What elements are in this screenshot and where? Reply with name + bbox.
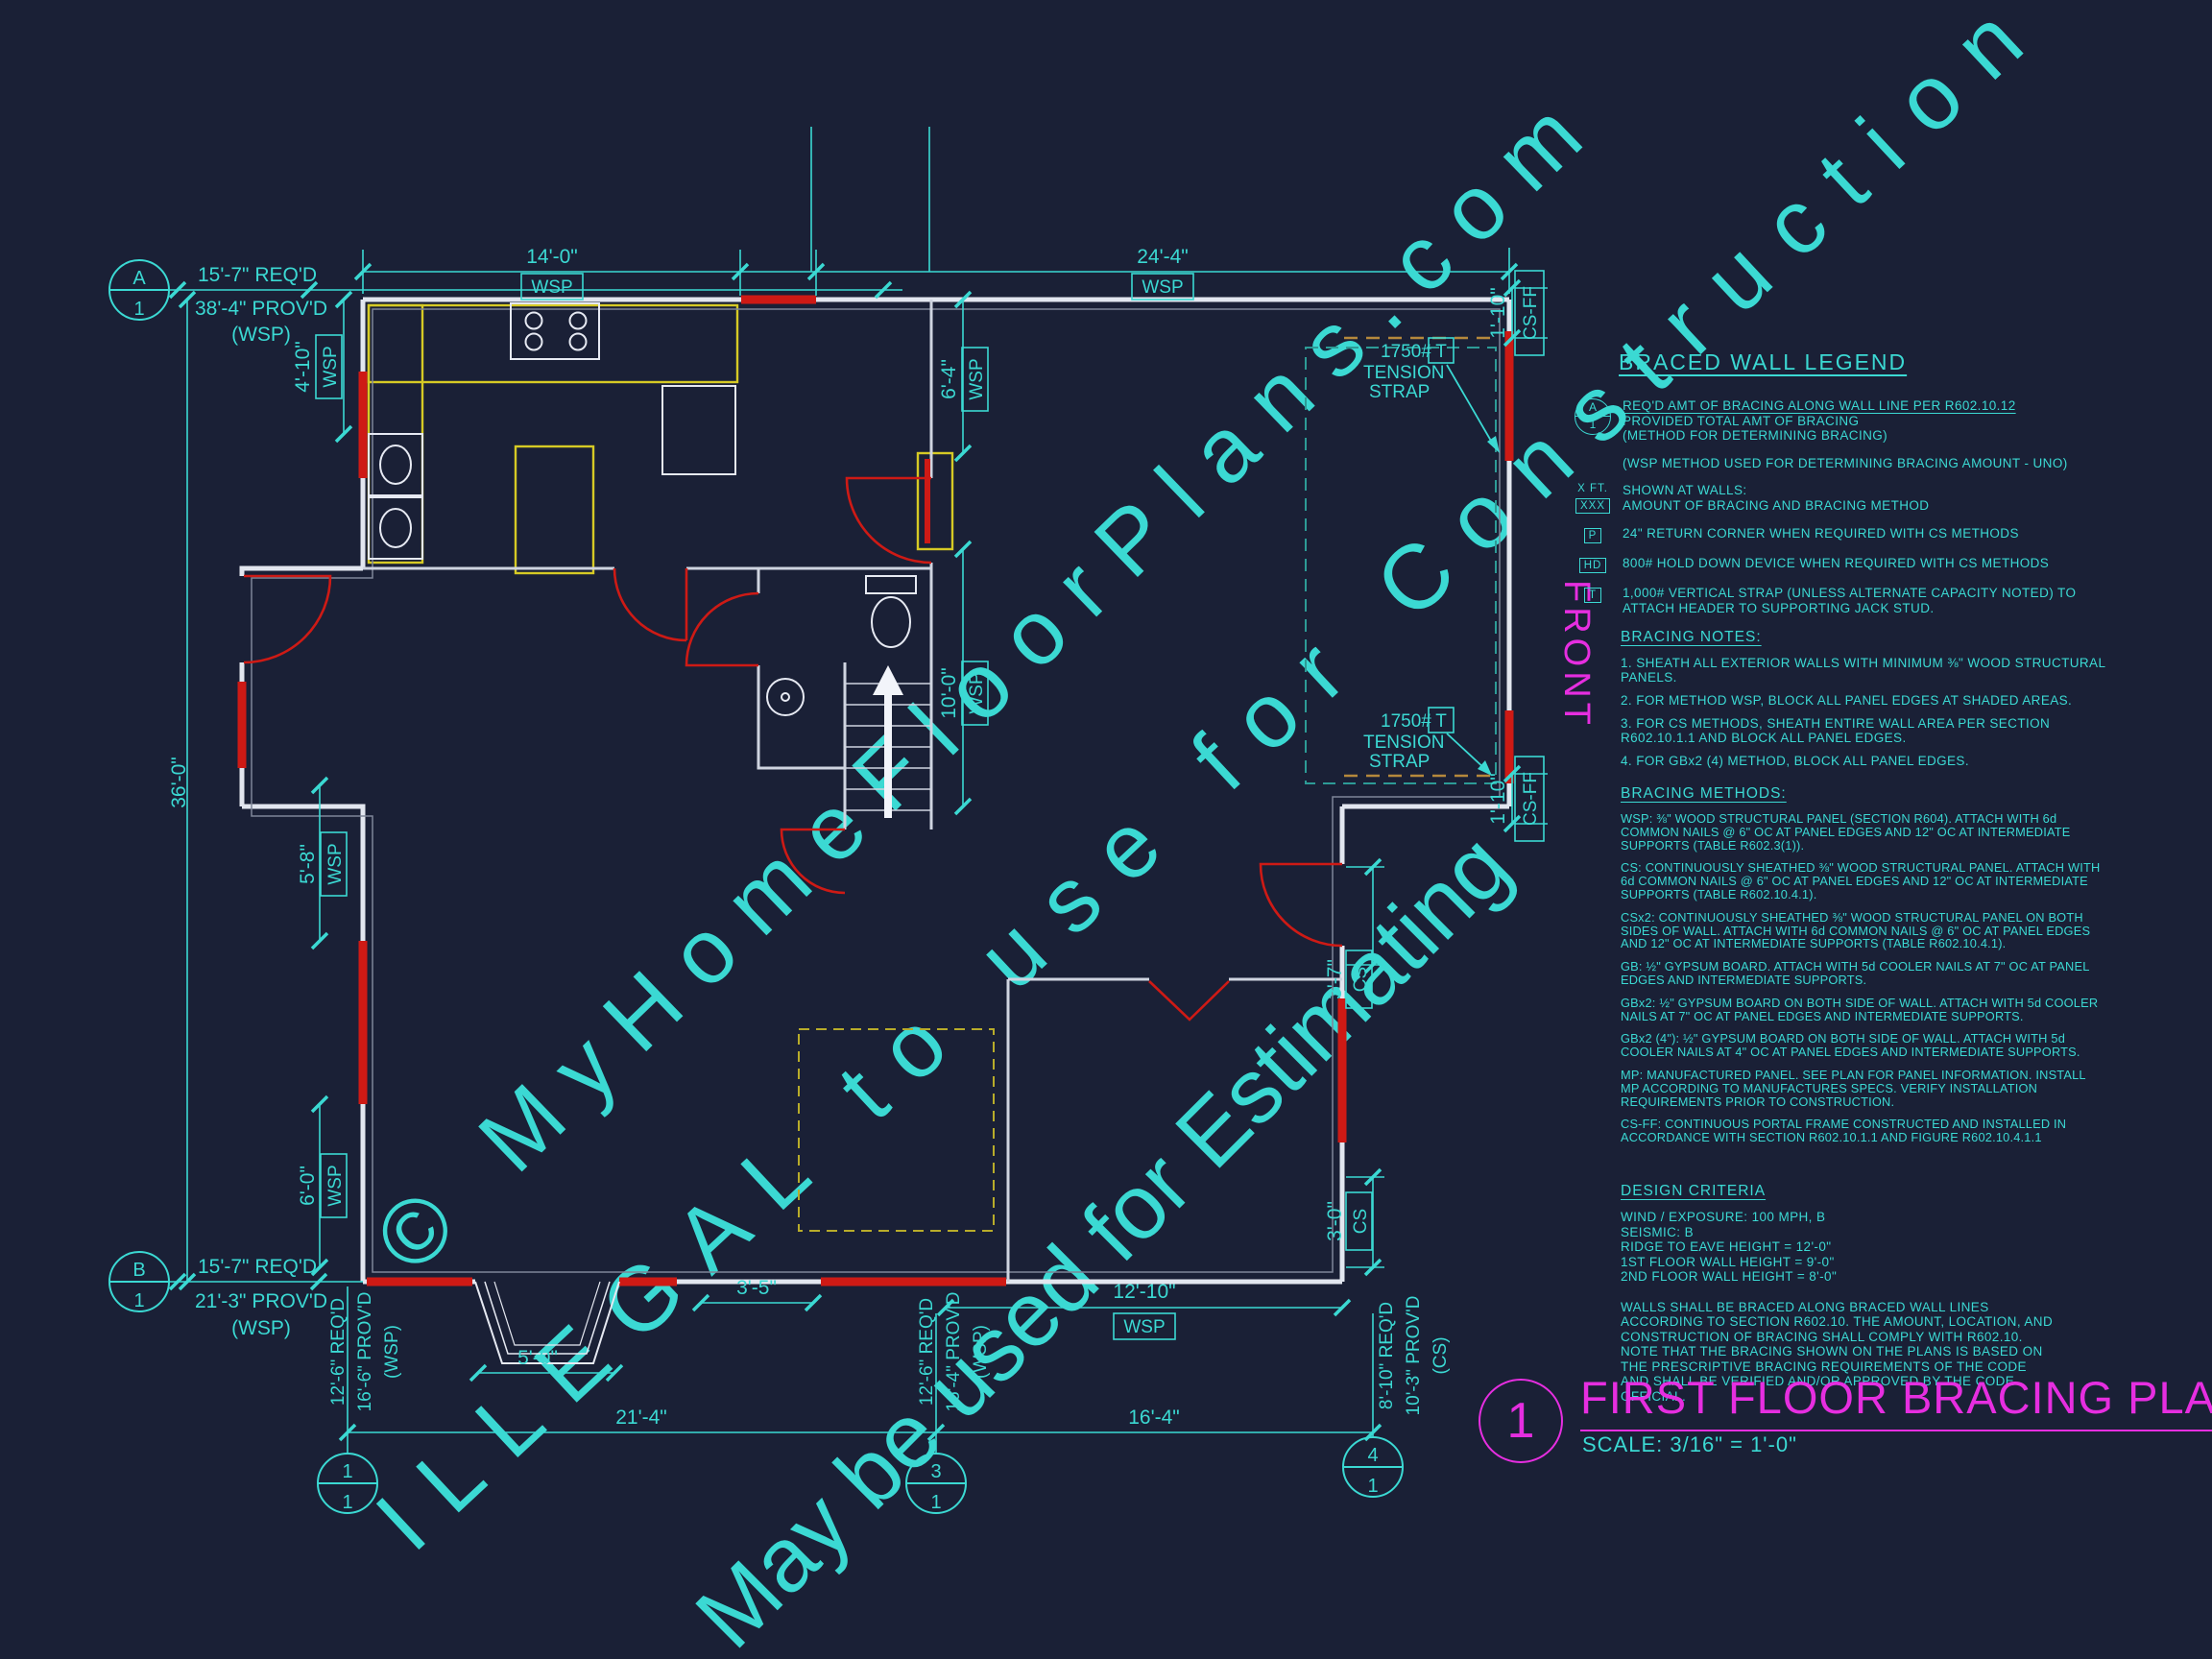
dim-b-method: (WSP) xyxy=(231,1317,291,1339)
dim-a-req: 15'-7" REQ'D xyxy=(198,264,317,286)
method-item: MP: MANUFACTURED PANEL. SEE PLAN FOR PAN… xyxy=(1621,1069,2101,1108)
burner xyxy=(570,313,587,329)
bubble-label: A xyxy=(132,268,146,289)
x-ft-label: X FT. xyxy=(1563,483,1623,494)
strap-capacity: 1750# xyxy=(1381,342,1431,362)
wall-left-jog xyxy=(242,568,363,806)
col1-method: (WSP) xyxy=(382,1325,402,1379)
col1-req: 12'-6" REQ'D xyxy=(328,1298,349,1406)
grid-bubble-3: 3 1 xyxy=(906,1454,966,1513)
detail-number-bubble: 1 xyxy=(1479,1379,1563,1463)
t-tag: T xyxy=(1584,588,1601,603)
col4-prov: 10'-3" PROV'D xyxy=(1404,1296,1424,1416)
dim-b-req: 15'-7" REQ'D xyxy=(198,1256,317,1278)
kitchen-sink-1 xyxy=(369,434,422,495)
dim-corner-bottom: 1'-10" xyxy=(1487,773,1509,825)
legend-item-amount: X FT. XXX SHOWN AT WALLS: AMOUNT OF BRAC… xyxy=(1563,483,2158,514)
dim-21-4: 21'-4" xyxy=(615,1407,667,1429)
legend-text: 800# HOLD DOWN DEVICE WHEN REQUIRED WITH… xyxy=(1623,556,2049,571)
grid-bubble-b: B 1 xyxy=(109,1252,169,1311)
wsp-tag: WSP xyxy=(967,358,987,399)
bubble-number: 1 xyxy=(1575,416,1610,433)
col4-method: (CS) xyxy=(1431,1336,1451,1374)
grid-bubble-4: 4 1 xyxy=(1343,1437,1403,1497)
dim-a-method: (WSP) xyxy=(231,324,291,346)
toilet-tank xyxy=(866,576,916,593)
refrigerator xyxy=(662,386,735,474)
sheet-title: FIRST FLOOR BRACING PLAN xyxy=(1580,1371,2212,1431)
legend-text: 1,000# VERTICAL STRAP (UNLESS ALTERNATE … xyxy=(1623,586,2107,615)
burner xyxy=(526,313,542,329)
method-item: GB: ½" GYPSUM BOARD. ATTACH WITH 5d COOL… xyxy=(1621,960,2101,987)
dim-a-prov: 38'-4" PROV'D xyxy=(195,298,327,320)
counter-top-run xyxy=(369,305,737,382)
strap-capacity: 1750# xyxy=(1381,711,1431,732)
bubble-label: B xyxy=(132,1260,145,1281)
col3-req: 12'-6" REQ'D xyxy=(917,1298,937,1406)
door-hall xyxy=(614,568,686,640)
door-bath xyxy=(686,593,758,665)
col1-prov: 16'-6" PROV'D xyxy=(355,1292,375,1412)
chimney-box xyxy=(918,453,952,549)
legend-item-return-corner: P 24" RETURN CORNER WHEN REQUIRED WITH C… xyxy=(1563,526,2158,543)
blueprint-sheet: © MyHomeFloorPlans.com ILLEGAL to use fo… xyxy=(0,0,2212,1659)
col3-method: (WSP) xyxy=(971,1325,991,1379)
strap-t-tag: T xyxy=(1435,342,1447,362)
dim-5-0: 5'-0" xyxy=(517,1347,558,1369)
legend-text: REQ'D AMT OF BRACING ALONG WALL LINE PER… xyxy=(1623,398,2016,414)
bracing-methods: BRACING METHODS: WSP: ⅜" WOOD STRUCTURAL… xyxy=(1621,785,2101,1154)
strap-word: STRAP xyxy=(1369,382,1430,402)
bracing-methods-title: BRACING METHODS: xyxy=(1621,785,2101,803)
sink-basin xyxy=(380,445,411,484)
col4-req: 8'-10" REQ'D xyxy=(1377,1302,1397,1409)
note-item: 3. FOR CS METHODS, SHEATH ENTIRE WALL AR… xyxy=(1621,716,2105,745)
col3-prov: 16'-4" PROV'D xyxy=(944,1292,964,1412)
legend-title: BRACED WALL LEGEND xyxy=(1619,349,2158,375)
watermark-line3: May be used for Estimating xyxy=(677,815,1529,1659)
legend-text: SHOWN AT WALLS: xyxy=(1623,483,1929,498)
dim-3-0: 3'-0" xyxy=(1324,1201,1346,1241)
legend-text: PROVIDED TOTAL AMT OF BRACING xyxy=(1623,414,2016,429)
wsp-tag: WSP xyxy=(1142,277,1183,298)
cs-ff-tag: CS-FF xyxy=(1521,772,1541,826)
dim-corner-top: 1'-10" xyxy=(1487,287,1509,339)
wsp-tag: WSP xyxy=(1123,1317,1165,1337)
tension-strap-callout-top: 1750# T TENSION STRAP xyxy=(1363,338,1500,453)
dim-36-0: 36'-0" xyxy=(168,757,190,808)
dim-5-8: 5'-8" xyxy=(297,844,319,884)
sheet-scale: SCALE: 3/16" = 1'-0" xyxy=(1582,1432,1797,1457)
method-item: CSx2: CONTINUOUSLY SHEATHED ⅜" WOOD STRU… xyxy=(1621,911,2101,950)
double-door-leaves xyxy=(1149,981,1229,1020)
wall-bath-left xyxy=(758,568,845,768)
cs-tag: CS xyxy=(1351,967,1371,992)
grid-bubble-a: A 1 xyxy=(109,260,169,320)
bracing-notes: BRACING NOTES: 1. SHEATH ALL EXTERIOR WA… xyxy=(1621,629,2105,777)
bath-sink-drain xyxy=(781,693,789,701)
legend-item-vertical-strap: T 1,000# VERTICAL STRAP (UNLESS ALTERNAT… xyxy=(1563,586,2158,615)
strap-word: TENSION xyxy=(1363,733,1444,753)
wsp-tag: WSP xyxy=(325,843,346,884)
toilet-bowl xyxy=(872,597,910,647)
cs-ff-tag: CS-FF xyxy=(1521,286,1541,340)
note-item: 1. SHEATH ALL EXTERIOR WALLS WITH MINIMU… xyxy=(1621,656,2105,685)
criteria-line: 1ST FLOOR WALL HEIGHT = 9'-0" xyxy=(1621,1255,2072,1270)
note-item: 4. FOR GBx2 (4) METHOD, BLOCK ALL PANEL … xyxy=(1621,754,2105,768)
bubble-label: 1 xyxy=(133,299,144,320)
method-item: CS-FF: CONTINUOUS PORTAL FRAME CONSTRUCT… xyxy=(1621,1118,2101,1144)
criteria-line: 2ND FLOOR WALL HEIGHT = 8'-0" xyxy=(1621,1269,2072,1285)
dim-10-0: 10'-0" xyxy=(938,667,960,719)
kitchen-island xyxy=(516,446,593,573)
dim-3-5: 3'-5" xyxy=(736,1277,777,1299)
detail-number: 1 xyxy=(1507,1392,1535,1450)
bubble-label: 1 xyxy=(133,1290,144,1311)
method-item: GBx2: ½" GYPSUM BOARD ON BOTH SIDE OF WA… xyxy=(1621,997,2101,1023)
bubble-label: 3 xyxy=(930,1461,941,1482)
sink-basin xyxy=(380,509,411,547)
dim-14-0: 14'-0" xyxy=(526,246,578,268)
leader-arrowhead xyxy=(1478,760,1492,776)
p-tag: P xyxy=(1584,528,1602,543)
grid-bubble-1: 1 1 xyxy=(318,1454,377,1513)
dim-6-0: 6'-0" xyxy=(297,1166,319,1206)
criteria-line: SEISMIC: B xyxy=(1621,1225,2072,1240)
bubble-label: 1 xyxy=(342,1492,352,1513)
grid-bubble-icon: A 1 xyxy=(1575,398,1611,435)
wsp-tag: WSP xyxy=(967,672,987,713)
strap-word: STRAP xyxy=(1369,752,1430,772)
wsp-tag: WSP xyxy=(531,277,572,298)
dim-4-10: 4'-10" xyxy=(292,341,314,393)
bubble-label: 1 xyxy=(342,1461,352,1482)
criteria-line: RIDGE TO EAVE HEIGHT = 12'-0" xyxy=(1621,1239,2072,1255)
burner xyxy=(570,334,587,350)
hd-tag: HD xyxy=(1579,558,1607,573)
legend-item-braced-line: A 1 REQ'D AMT OF BRACING ALONG WALL LINE… xyxy=(1563,398,2158,444)
dim-16-4: 16'-4" xyxy=(1128,1407,1180,1429)
legend-item-hold-down: HD 800# HOLD DOWN DEVICE WHEN REQUIRED W… xyxy=(1563,556,2158,573)
burner xyxy=(526,334,542,350)
bubble-label: 1 xyxy=(1367,1476,1378,1497)
bubble-letter: A xyxy=(1575,399,1610,416)
bath-sink xyxy=(767,679,804,715)
bracing-notes-title: BRACING NOTES: xyxy=(1621,629,2105,646)
legend-text: (METHOD FOR DETERMINING BRACING) xyxy=(1623,428,2016,444)
dim-24-4: 24'-4" xyxy=(1137,246,1189,268)
kitchen-cabinetry xyxy=(369,305,952,573)
bubble-label: 1 xyxy=(930,1492,941,1513)
stove xyxy=(511,303,599,359)
design-criteria-title: DESIGN CRITERIA xyxy=(1621,1183,2072,1200)
dim-3-7: 3'-7" xyxy=(1324,959,1346,999)
strap-t-tag: T xyxy=(1435,711,1447,732)
wsp-tag: WSP xyxy=(325,1165,346,1206)
kitchen-sink-2 xyxy=(369,497,422,559)
bubble-label: 4 xyxy=(1367,1445,1378,1466)
method-item: CS: CONTINUOUSLY SHEATHED ⅜" WOOD STRUCT… xyxy=(1621,861,2101,901)
note-item: 2. FOR METHOD WSP, BLOCK ALL PANEL EDGES… xyxy=(1621,693,2105,708)
legend-text: (WSP METHOD USED FOR DETERMINING BRACING… xyxy=(1623,456,2068,471)
criteria-line: WIND / EXPOSURE: 100 MPH, B xyxy=(1621,1210,2072,1225)
wsp-tag: WSP xyxy=(321,346,341,387)
legend-text: 24" RETURN CORNER WHEN REQUIRED WITH CS … xyxy=(1623,526,2019,541)
legend-text: AMOUNT OF BRACING AND BRACING METHOD xyxy=(1623,498,1929,514)
dim-12-10: 12'-10" xyxy=(1113,1281,1175,1303)
dim-6-4: 6'-4" xyxy=(938,359,960,399)
dim-b-prov: 21'-3" PROV'D xyxy=(195,1290,327,1312)
door-bedroom xyxy=(1261,864,1342,946)
door-left-jog xyxy=(244,576,330,662)
tension-strap-callout-bottom: 1750# T TENSION STRAP xyxy=(1363,708,1492,776)
cs-tag: CS xyxy=(1351,1209,1371,1234)
legend-item-wsp-note: (WSP METHOD USED FOR DETERMINING BRACING… xyxy=(1563,456,2158,471)
method-item: GBx2 (4"): ½" GYPSUM BOARD ON BOTH SIDE … xyxy=(1621,1032,2101,1059)
braced-wall-legend: BRACED WALL LEGEND A 1 REQ'D AMT OF BRAC… xyxy=(1563,349,2158,628)
xxx-tag: XXX xyxy=(1575,498,1610,514)
strap-word: TENSION xyxy=(1363,363,1444,383)
method-item: WSP: ⅜" WOOD STRUCTURAL PANEL (SECTION R… xyxy=(1621,812,2101,852)
